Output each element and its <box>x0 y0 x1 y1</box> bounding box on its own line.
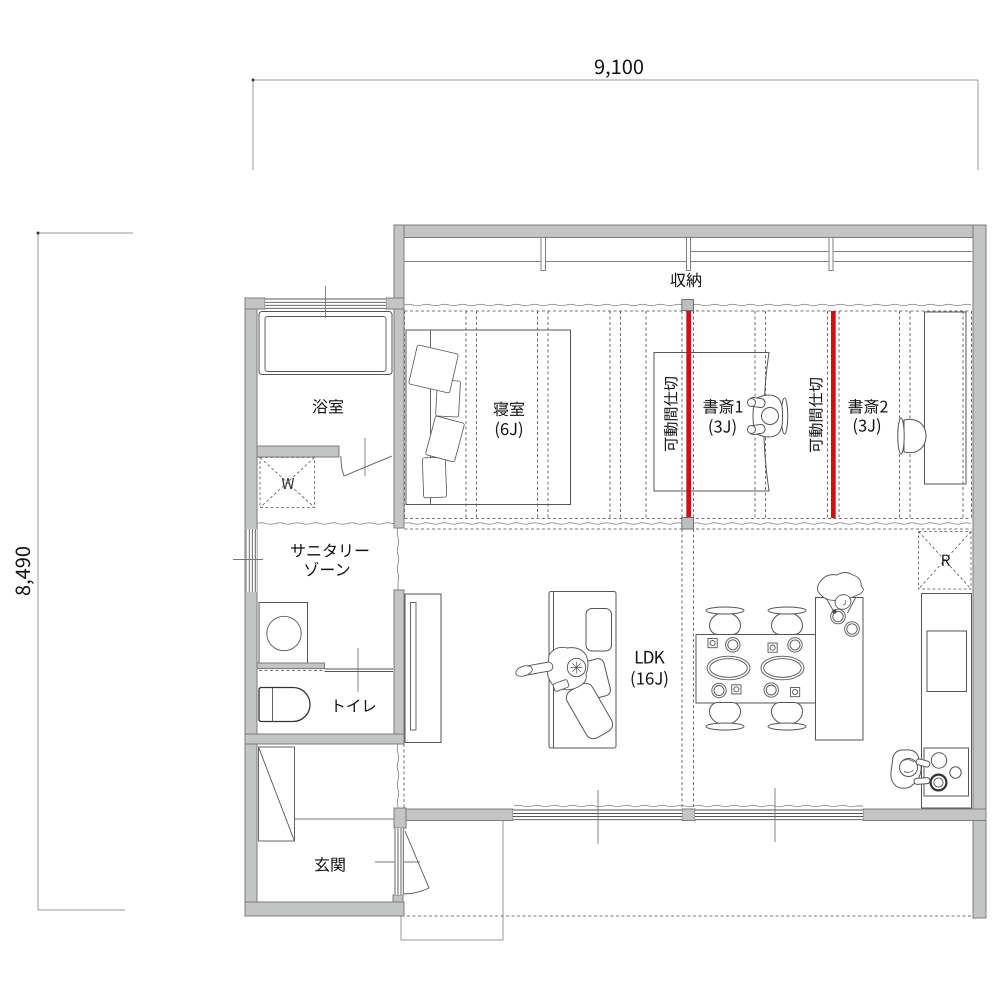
svg-text:8,490: 8,490 <box>7 546 36 596</box>
svg-text:ゾーン: ゾーン <box>303 557 350 581</box>
svg-text:(3J): (3J) <box>852 413 881 437</box>
svg-text:(3J): (3J) <box>708 414 737 438</box>
svg-text:(6J): (6J) <box>494 416 523 440</box>
svg-text:可動間仕切: 可動間仕切 <box>805 377 827 453</box>
svg-text:可動間仕切: 可動間仕切 <box>660 376 682 452</box>
svg-text:(16J): (16J) <box>630 666 669 690</box>
svg-text:浴室: 浴室 <box>312 394 344 418</box>
svg-text:収納: 収納 <box>670 267 702 291</box>
svg-text:玄関: 玄関 <box>314 852 346 876</box>
svg-text:R: R <box>941 549 951 571</box>
svg-text:トイレ: トイレ <box>330 695 377 717</box>
svg-text:W: W <box>281 473 294 494</box>
svg-text:9,100: 9,100 <box>594 51 644 80</box>
